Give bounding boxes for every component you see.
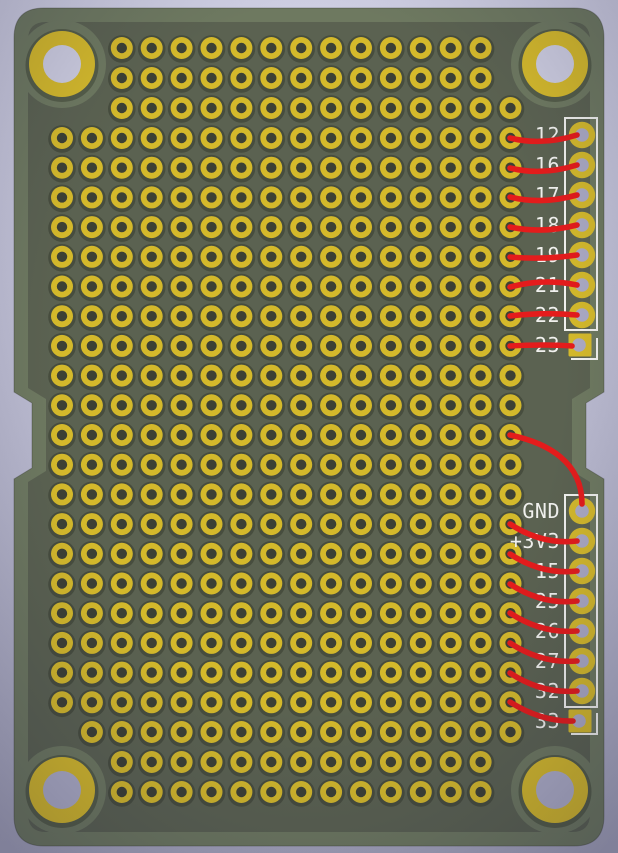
proto-hole [138,452,166,480]
proto-hole [407,600,435,628]
proto-hole [287,482,315,510]
proto-hole [198,125,226,153]
proto-hole [138,690,166,718]
proto-hole [377,65,405,93]
proto-hole [347,660,375,688]
proto-hole [377,779,405,807]
proto-hole [347,571,375,599]
proto-hole [407,303,435,331]
proto-hole [287,125,315,153]
proto-hole [78,363,106,391]
proto-hole [198,600,226,628]
proto-hole [78,422,106,450]
proto-hole [48,155,76,183]
proto-hole [258,274,286,302]
proto-hole [48,511,76,539]
pin-label-GND: GND [522,499,560,523]
proto-hole [198,274,226,302]
proto-hole [317,363,345,391]
proto-hole [287,600,315,628]
proto-hole [198,422,226,450]
proto-hole [258,333,286,361]
ratsnest-wire-19 [510,255,577,258]
proto-hole [467,571,495,599]
proto-hole [228,749,256,777]
proto-hole [407,690,435,718]
proto-hole [467,303,495,331]
proto-hole [108,214,136,242]
proto-hole [347,541,375,569]
proto-hole [407,35,435,63]
proto-hole [228,244,256,272]
proto-hole [78,452,106,480]
proto-hole [287,333,315,361]
proto-hole [108,155,136,183]
proto-hole [228,600,256,628]
proto-hole [347,393,375,421]
proto-hole [317,35,345,63]
proto-hole [228,303,256,331]
proto-hole [287,452,315,480]
proto-hole [467,600,495,628]
proto-hole [48,630,76,658]
proto-hole [138,422,166,450]
proto-hole [48,363,76,391]
proto-hole [317,125,345,153]
proto-hole [78,185,106,213]
proto-hole [108,660,136,688]
proto-hole [287,393,315,421]
proto-hole [317,244,345,272]
proto-hole [168,95,196,123]
proto-hole [347,511,375,539]
pin-label-18: 18 [535,213,560,237]
proto-hole [377,363,405,391]
proto-hole [198,779,226,807]
proto-hole [377,452,405,480]
mounting-hole [26,29,99,102]
proto-hole [437,660,465,688]
proto-hole [287,422,315,450]
proto-hole [437,95,465,123]
proto-hole [437,35,465,63]
proto-hole [347,630,375,658]
proto-hole [467,482,495,510]
proto-hole [78,274,106,302]
proto-hole [377,333,405,361]
proto-hole [138,333,166,361]
proto-hole [108,35,136,63]
proto-hole [317,482,345,510]
proto-hole [168,511,196,539]
mounting-hole [519,755,592,828]
proto-hole [497,719,525,747]
proto-hole [138,155,166,183]
proto-hole [407,185,435,213]
proto-hole [138,125,166,153]
proto-hole [437,333,465,361]
proto-hole [258,541,286,569]
proto-hole [347,600,375,628]
proto-hole [78,244,106,272]
proto-hole [407,571,435,599]
proto-hole [407,749,435,777]
proto-hole [108,779,136,807]
proto-hole [48,125,76,153]
pin-label-17: 17 [535,183,560,207]
proto-hole [437,393,465,421]
proto-hole [258,35,286,63]
proto-hole [347,155,375,183]
proto-hole [407,541,435,569]
proto-hole [168,571,196,599]
proto-hole [108,511,136,539]
proto-hole [407,779,435,807]
proto-hole [377,749,405,777]
proto-hole [437,690,465,718]
proto-hole [347,95,375,123]
proto-hole [108,393,136,421]
proto-hole [258,600,286,628]
proto-hole [78,125,106,153]
proto-hole [168,719,196,747]
proto-hole [347,244,375,272]
proto-hole [377,125,405,153]
proto-hole [78,630,106,658]
proto-hole [198,511,226,539]
proto-hole [78,393,106,421]
proto-hole [198,303,226,331]
proto-hole [497,452,525,480]
proto-hole [258,363,286,391]
proto-hole [138,630,166,658]
proto-hole [48,690,76,718]
proto-hole [287,185,315,213]
proto-hole [138,779,166,807]
proto-hole [108,571,136,599]
proto-hole [497,393,525,421]
proto-hole [138,303,166,331]
proto-hole [437,779,465,807]
proto-hole [198,749,226,777]
proto-hole [168,749,196,777]
proto-hole [138,35,166,63]
proto-hole [78,511,106,539]
proto-hole [407,511,435,539]
proto-hole [108,541,136,569]
proto-hole [317,214,345,242]
proto-hole [437,482,465,510]
proto-hole [78,719,106,747]
proto-hole [287,719,315,747]
proto-hole [287,65,315,93]
proto-hole [228,125,256,153]
proto-hole [168,690,196,718]
proto-hole [317,155,345,183]
proto-hole [287,779,315,807]
proto-hole [407,244,435,272]
proto-hole [287,35,315,63]
proto-hole [437,571,465,599]
proto-hole [198,35,226,63]
proto-hole [78,541,106,569]
proto-hole [228,65,256,93]
proto-hole [497,363,525,391]
proto-hole [78,333,106,361]
proto-hole [48,333,76,361]
proto-hole [437,303,465,331]
proto-hole [467,422,495,450]
proto-hole [347,35,375,63]
proto-hole [168,630,196,658]
proto-hole [228,422,256,450]
proto-hole [407,452,435,480]
proto-hole [228,274,256,302]
proto-hole [467,244,495,272]
proto-hole [347,185,375,213]
proto-hole [108,333,136,361]
proto-hole [168,779,196,807]
proto-hole [317,274,345,302]
proto-hole [48,185,76,213]
proto-hole [377,155,405,183]
proto-hole [108,749,136,777]
proto-hole [138,214,166,242]
proto-hole [168,125,196,153]
proto-hole [138,65,166,93]
proto-hole [437,630,465,658]
proto-hole [228,185,256,213]
proto-hole [48,244,76,272]
proto-hole [437,125,465,153]
ratsnest-wire-23 [510,345,572,346]
proto-hole [228,482,256,510]
proto-hole [467,95,495,123]
proto-hole [437,363,465,391]
proto-hole [228,660,256,688]
proto-hole [48,303,76,331]
proto-hole [467,125,495,153]
proto-hole [48,541,76,569]
proto-hole [437,749,465,777]
proto-hole [108,422,136,450]
proto-hole [258,65,286,93]
proto-hole [437,600,465,628]
mounting-hole [519,29,592,102]
proto-hole [228,155,256,183]
proto-hole [108,630,136,658]
proto-hole [497,482,525,510]
proto-hole [407,95,435,123]
proto-hole [168,422,196,450]
proto-hole [317,541,345,569]
proto-hole [198,660,226,688]
proto-hole [467,660,495,688]
proto-hole [317,660,345,688]
proto-hole [407,422,435,450]
proto-hole [377,422,405,450]
proto-hole [258,452,286,480]
proto-hole [407,155,435,183]
proto-hole [258,125,286,153]
proto-hole [258,482,286,510]
proto-hole [317,65,345,93]
proto-hole [287,511,315,539]
proto-hole [168,482,196,510]
proto-hole [437,155,465,183]
proto-hole [78,571,106,599]
proto-hole [138,749,166,777]
proto-hole [467,274,495,302]
proto-hole [407,333,435,361]
proto-hole [108,600,136,628]
proto-hole [347,333,375,361]
proto-hole [138,511,166,539]
proto-hole [198,244,226,272]
proto-hole [347,422,375,450]
proto-hole [377,214,405,242]
proto-hole [228,571,256,599]
proto-hole [108,125,136,153]
proto-hole [437,511,465,539]
proto-hole [287,214,315,242]
proto-hole [108,719,136,747]
proto-hole [467,393,495,421]
proto-hole [258,214,286,242]
proto-hole [198,719,226,747]
proto-hole [287,690,315,718]
proto-hole [198,630,226,658]
proto-hole [437,719,465,747]
proto-hole [138,274,166,302]
proto-hole [467,749,495,777]
proto-hole [228,452,256,480]
proto-hole [317,333,345,361]
proto-hole [108,363,136,391]
proto-hole [258,95,286,123]
proto-hole [437,185,465,213]
proto-hole [437,274,465,302]
proto-hole [287,303,315,331]
proto-hole [138,95,166,123]
proto-hole [78,303,106,331]
proto-hole [48,214,76,242]
proto-hole [108,95,136,123]
proto-hole [317,630,345,658]
proto-hole [228,630,256,658]
proto-hole [467,452,495,480]
proto-hole [78,600,106,628]
proto-hole [287,155,315,183]
proto-hole [168,600,196,628]
proto-hole [108,65,136,93]
proto-hole [377,274,405,302]
proto-hole [317,690,345,718]
proto-hole [377,35,405,63]
proto-hole [287,749,315,777]
proto-hole [138,600,166,628]
proto-hole [347,125,375,153]
proto-hole [138,393,166,421]
proto-hole [347,363,375,391]
proto-hole [377,541,405,569]
proto-hole [198,155,226,183]
pcb-board-render: 1216171819212223GND+3V3152526273233 [0,0,618,853]
proto-hole [168,214,196,242]
proto-hole [228,690,256,718]
proto-hole [377,244,405,272]
proto-hole [317,303,345,331]
proto-hole [377,393,405,421]
proto-hole [138,719,166,747]
proto-hole [407,274,435,302]
proto-hole [317,393,345,421]
proto-hole [228,35,256,63]
proto-hole [198,393,226,421]
proto-hole [78,482,106,510]
proto-hole [78,214,106,242]
proto-hole [467,155,495,183]
proto-hole [138,660,166,688]
proto-hole [258,749,286,777]
proto-hole [198,95,226,123]
proto-hole [78,660,106,688]
proto-hole [168,303,196,331]
proto-hole [437,244,465,272]
proto-hole [497,95,525,123]
proto-hole [198,571,226,599]
proto-hole [377,185,405,213]
proto-hole [228,95,256,123]
proto-hole [407,660,435,688]
proto-hole [198,690,226,718]
proto-hole [437,422,465,450]
proto-hole [258,690,286,718]
proto-hole [48,600,76,628]
proto-hole [48,274,76,302]
proto-hole [287,630,315,658]
proto-hole [168,185,196,213]
proto-hole [377,600,405,628]
proto-hole [198,482,226,510]
proto-hole [168,274,196,302]
proto-hole [198,452,226,480]
proto-hole [407,719,435,747]
proto-hole [138,185,166,213]
proto-hole [377,95,405,123]
proto-hole [138,541,166,569]
proto-hole [258,660,286,688]
proto-hole [198,214,226,242]
proto-hole [347,303,375,331]
proto-hole [138,244,166,272]
proto-hole [287,95,315,123]
proto-hole [407,363,435,391]
proto-hole [377,690,405,718]
proto-hole [317,571,345,599]
proto-hole [347,482,375,510]
proto-hole [467,719,495,747]
proto-hole [347,749,375,777]
proto-hole [258,571,286,599]
proto-hole [258,303,286,331]
proto-hole [377,719,405,747]
proto-hole [258,393,286,421]
proto-hole [467,65,495,93]
proto-hole [407,214,435,242]
proto-hole [138,571,166,599]
proto-hole [377,511,405,539]
